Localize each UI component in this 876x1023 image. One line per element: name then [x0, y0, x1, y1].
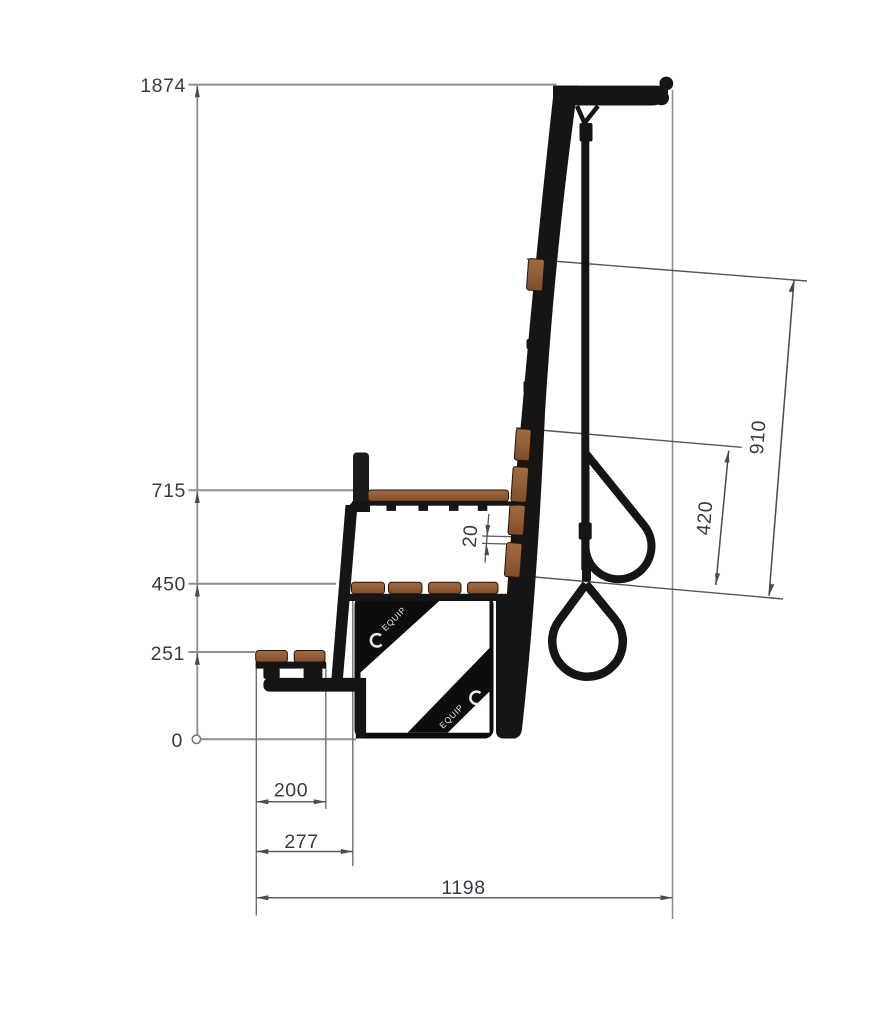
svg-text:420: 420	[693, 500, 718, 536]
svg-text:0: 0	[172, 730, 183, 752]
svg-text:20: 20	[459, 524, 483, 549]
svg-text:251: 251	[151, 643, 185, 665]
svg-text:1198: 1198	[441, 877, 485, 899]
svg-text:450: 450	[152, 574, 186, 596]
svg-text:715: 715	[152, 480, 186, 502]
svg-text:277: 277	[284, 831, 318, 853]
svg-text:1874: 1874	[140, 75, 186, 97]
svg-text:910: 910	[746, 419, 771, 455]
svg-text:200: 200	[274, 780, 308, 802]
